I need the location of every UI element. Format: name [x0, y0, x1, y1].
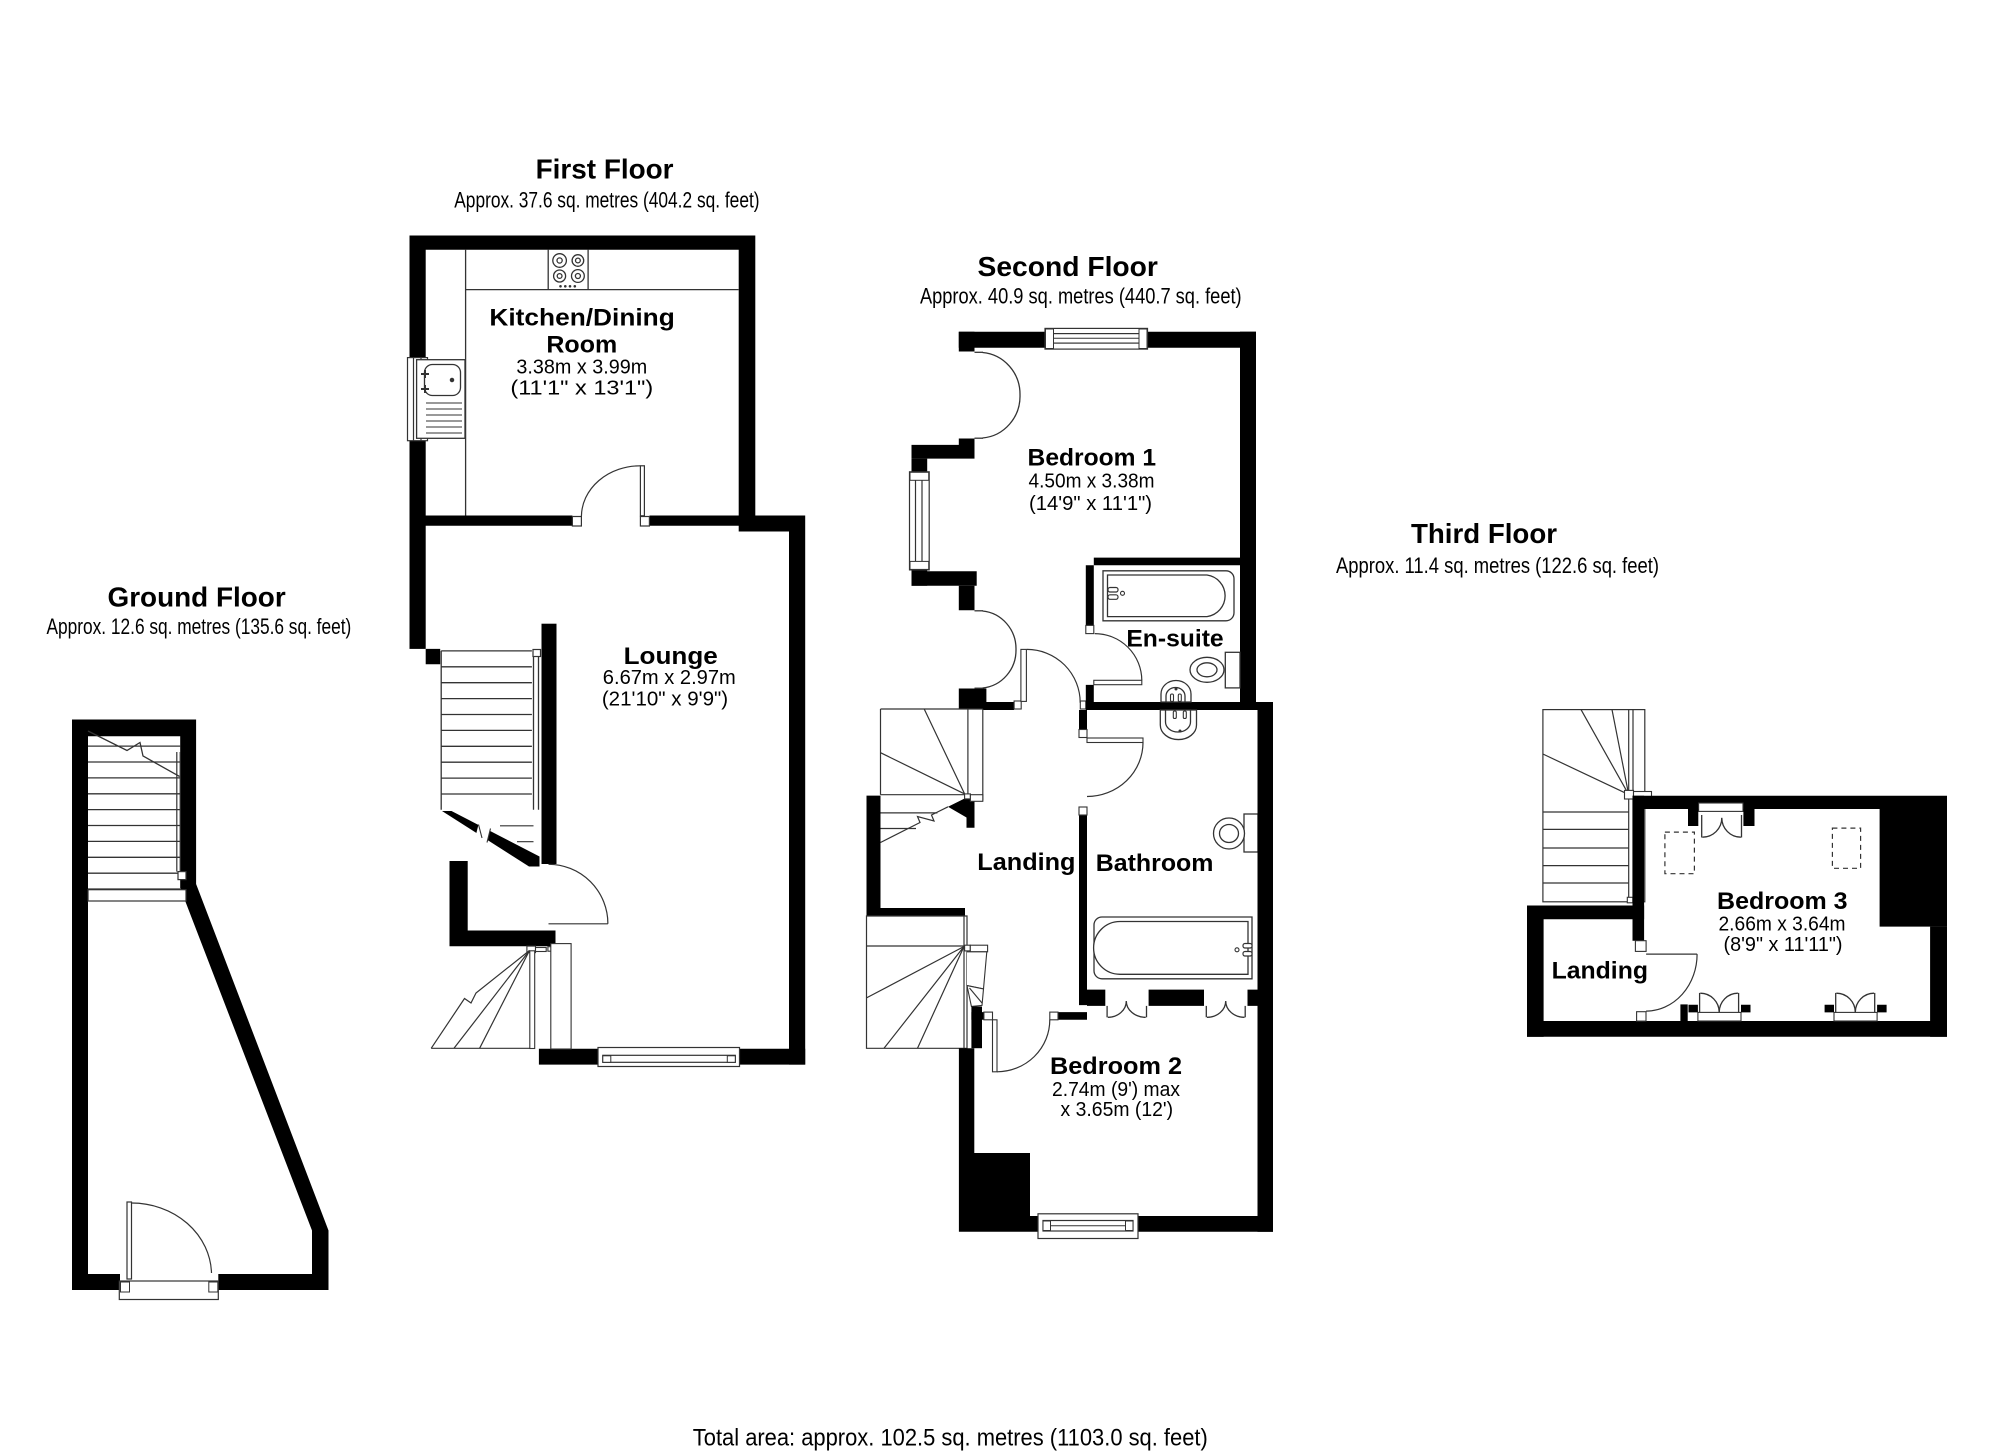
- svg-text:(11'1" x 13'1"): (11'1" x 13'1"): [510, 377, 653, 400]
- svg-text:Bathroom: Bathroom: [1096, 850, 1214, 877]
- svg-text:Ground Floor: Ground Floor: [108, 582, 286, 613]
- svg-text:Approx. 37.6 sq. metres (404.2: Approx. 37.6 sq. metres (404.2 sq. feet): [454, 188, 759, 213]
- svg-text:Second Floor: Second Floor: [978, 251, 1158, 282]
- svg-text:Kitchen/Dining: Kitchen/Dining: [489, 305, 674, 332]
- svg-text:Bedroom 2: Bedroom 2: [1050, 1053, 1182, 1080]
- svg-text:6.67m x 2.97m: 6.67m x 2.97m: [603, 666, 736, 689]
- svg-text:Bedroom 3: Bedroom 3: [1717, 888, 1848, 915]
- svg-text:(8'9" x 11'11"): (8'9" x 11'11"): [1724, 933, 1843, 956]
- svg-text:Bedroom 1: Bedroom 1: [1028, 445, 1157, 472]
- svg-text:First Floor: First Floor: [536, 154, 674, 185]
- svg-text:(21'10" x 9'9"): (21'10" x 9'9"): [602, 688, 728, 711]
- svg-text:Approx. 12.6 sq. metres (135.6: Approx. 12.6 sq. metres (135.6 sq. feet): [47, 614, 352, 639]
- svg-text:Total area: approx. 102.5 sq.: Total area: approx. 102.5 sq. metres (11…: [693, 1425, 1208, 1452]
- svg-text:Approx. 11.4 sq. metres (122.6: Approx. 11.4 sq. metres (122.6 sq. feet): [1336, 553, 1659, 578]
- svg-text:Third Floor: Third Floor: [1411, 518, 1557, 549]
- svg-text:Landing: Landing: [1552, 958, 1648, 985]
- svg-text:3.38m x 3.99m: 3.38m x 3.99m: [516, 355, 647, 378]
- svg-text:En-suite: En-suite: [1126, 625, 1223, 652]
- svg-text:x 3.65m (12'): x 3.65m (12'): [1061, 1098, 1174, 1121]
- svg-text:4.50m x 3.38m: 4.50m x 3.38m: [1029, 470, 1155, 493]
- svg-text:(14'9" x 11'1"): (14'9" x 11'1"): [1029, 492, 1152, 515]
- svg-text:Approx. 40.9 sq. metres (440.7: Approx. 40.9 sq. metres (440.7 sq. feet): [920, 284, 1242, 309]
- svg-text:Landing: Landing: [977, 849, 1075, 876]
